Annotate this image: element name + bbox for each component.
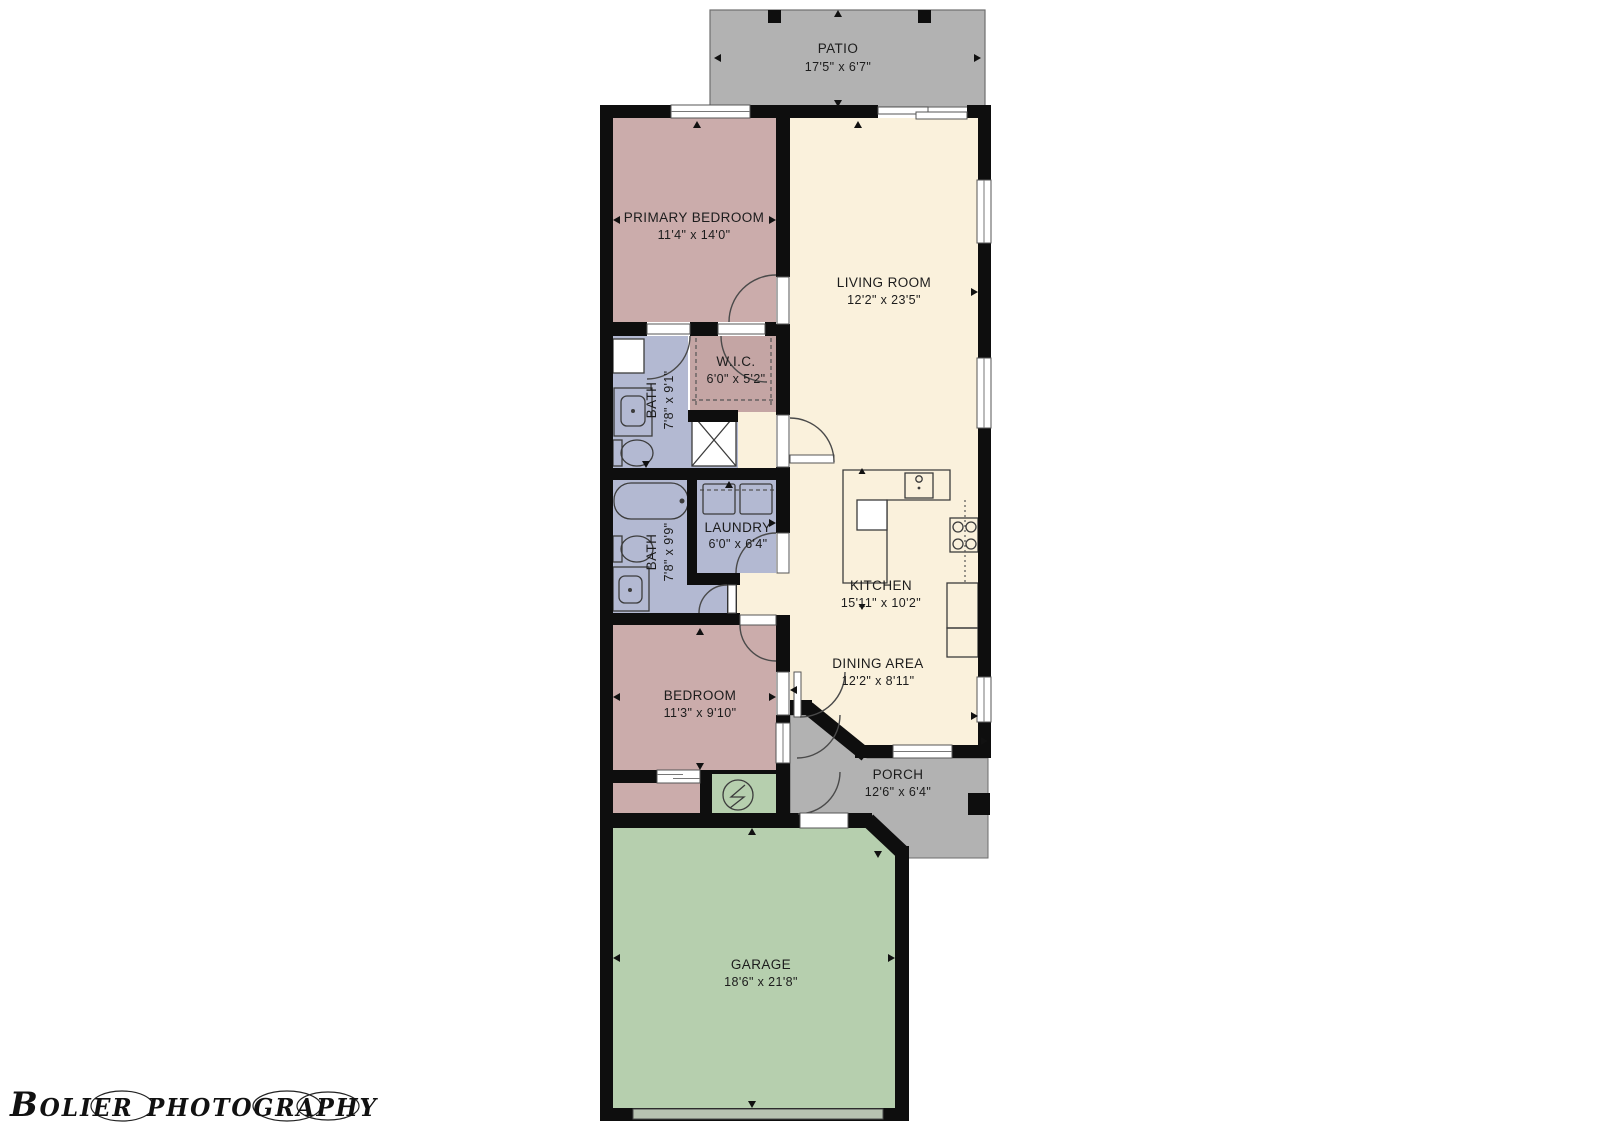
- watermark-text: Bolier photography: [9, 1085, 379, 1125]
- hallway-floor: [738, 412, 776, 468]
- garage-label: GARAGE: [731, 957, 791, 972]
- cabinet: [613, 339, 644, 373]
- door-leaf: [777, 533, 789, 573]
- bath2-label: BATH: [644, 534, 659, 571]
- dining-label: DINING AREA: [832, 656, 923, 671]
- bedroom-label: BEDROOM: [664, 688, 737, 703]
- kitchen-label: KITCHEN: [850, 578, 912, 593]
- garage-door: [633, 1109, 883, 1119]
- door-leaf: [794, 672, 801, 717]
- floor-plan: PATIO 17'5" x 6'7": [0, 0, 1600, 1133]
- dining-dims: 12'2" x 8'11": [842, 674, 915, 688]
- door-leaf: [728, 585, 736, 613]
- porch-label: PORCH: [873, 767, 924, 782]
- bedroom-dims: 11'3" x 9'10": [664, 706, 737, 720]
- door-leaf: [740, 615, 776, 625]
- dishwasher: [857, 500, 887, 530]
- utility-nook-floor: [712, 774, 776, 813]
- patio-post: [918, 10, 931, 23]
- door-leaf-garage-entry: [800, 813, 848, 828]
- bath1-dims: 7'8" x 9'1": [662, 370, 676, 429]
- door-leaf: [718, 324, 765, 334]
- porch-dims: 12'6" x 6'4": [865, 785, 931, 799]
- sliding-door-panel: [916, 112, 967, 119]
- laundry-label: LAUNDRY: [704, 520, 771, 535]
- kitchen-dims: 15'11" x 10'2": [841, 596, 921, 610]
- garage-dims: 18'6" x 21'8": [724, 975, 798, 989]
- room-patio: PATIO 17'5" x 6'7": [710, 10, 985, 107]
- hallway-floor: [737, 573, 790, 617]
- door-leaf: [790, 455, 834, 463]
- closet-sliding-door: [657, 770, 700, 783]
- door-leaf: [777, 277, 789, 324]
- living-room-dims: 12'2" x 23'5": [847, 293, 921, 307]
- living-room-label: LIVING ROOM: [837, 275, 931, 290]
- door-leaf: [777, 672, 789, 715]
- wic-dims: 6'0" x 5'2": [706, 372, 765, 386]
- patio-label: PATIO: [818, 41, 859, 56]
- porch-post: [968, 793, 990, 815]
- patio-post: [768, 10, 781, 23]
- bedroom-closet-floor: [613, 783, 700, 813]
- patio-dims: 17'5" x 6'7": [805, 60, 871, 74]
- watermark: Bolier photography: [9, 1085, 379, 1125]
- floor-plan-page: PATIO 17'5" x 6'7": [0, 0, 1600, 1133]
- laundry-dims: 6'0" x 6'4": [708, 537, 767, 551]
- wic-label: W.I.C.: [716, 354, 755, 369]
- primary-bedroom-label: PRIMARY BEDROOM: [624, 210, 765, 225]
- bath1-label: BATH: [644, 382, 659, 419]
- door-leaf: [777, 415, 789, 467]
- primary-bedroom-dims: 11'4" x 14'0": [658, 228, 731, 242]
- door-leaf: [647, 324, 690, 334]
- bath2-dims: 7'8" x 9'9": [662, 522, 676, 581]
- room-living-kitchen-dining-floor: [790, 118, 978, 745]
